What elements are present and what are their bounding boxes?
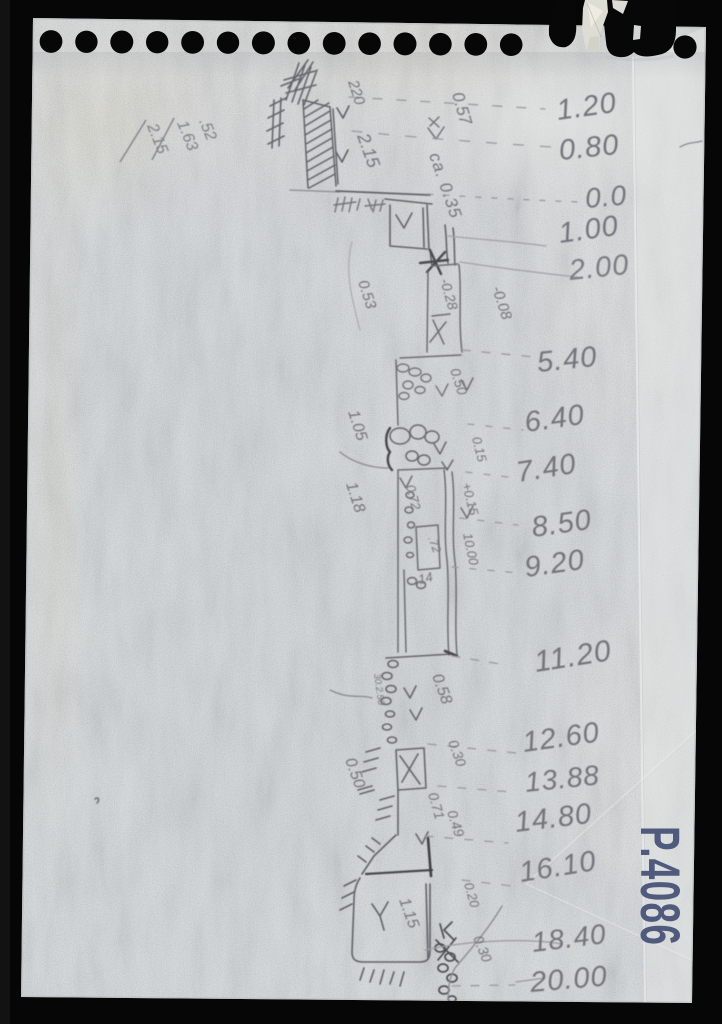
svg-text:5.40: 5.40 — [535, 341, 598, 379]
svg-text:20.00: 20.00 — [528, 960, 609, 999]
svg-text:0.80: 0.80 — [557, 129, 620, 167]
svg-text:P.4086: P.4086 — [628, 826, 691, 946]
svg-text:2.00: 2.00 — [566, 249, 630, 287]
svg-text:0.0: 0.0 — [584, 179, 628, 214]
